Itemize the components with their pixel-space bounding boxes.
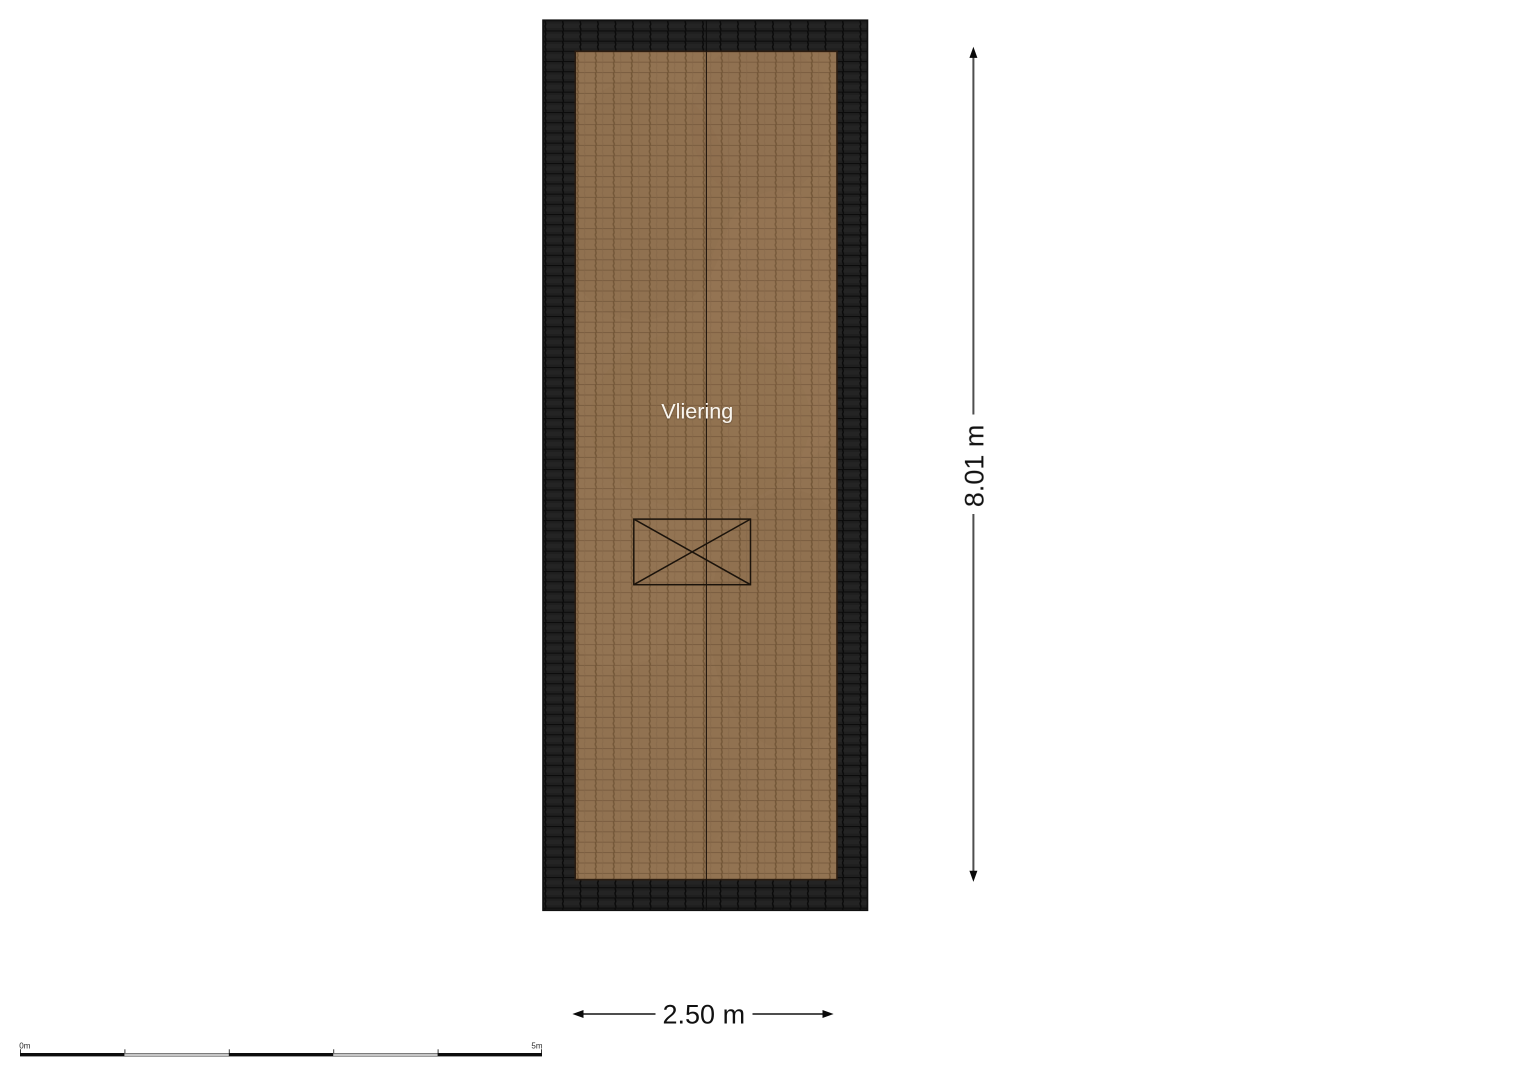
svg-text:5m: 5m xyxy=(531,1041,542,1050)
svg-text:2.50 m: 2.50 m xyxy=(663,1000,746,1030)
svg-text:0m: 0m xyxy=(19,1041,30,1050)
svg-text:8.01 m: 8.01 m xyxy=(959,425,989,508)
svg-text:Vliering: Vliering xyxy=(661,398,733,423)
